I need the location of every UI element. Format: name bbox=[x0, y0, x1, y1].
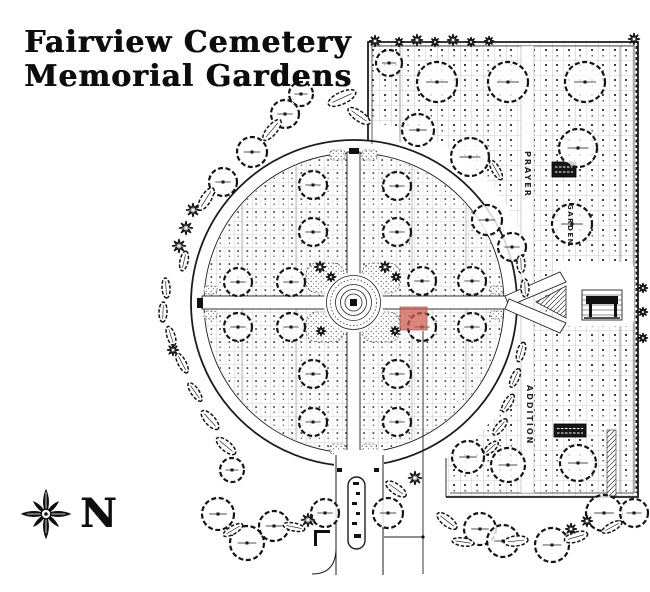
label-prayer: PRAYER bbox=[523, 151, 532, 198]
shrub-star-icon bbox=[565, 523, 577, 535]
shrub-star-icon bbox=[430, 37, 440, 47]
shrub-star-icon bbox=[408, 471, 422, 485]
shrub-star-icon bbox=[369, 35, 381, 47]
compass-north-label: N bbox=[80, 486, 117, 542]
compass: N bbox=[18, 486, 117, 542]
shrub-star-icon bbox=[628, 33, 640, 45]
highlighted-plot[interactable] bbox=[400, 307, 427, 330]
center-fountain bbox=[324, 273, 384, 333]
shrub-star-icon bbox=[484, 36, 494, 46]
shrub-star-icon bbox=[186, 203, 200, 217]
shrub-star-icon bbox=[172, 239, 186, 253]
compass-rose-icon bbox=[18, 486, 74, 542]
shrub-star-icon bbox=[447, 34, 459, 46]
map-title-line1: Fairview Cemetery bbox=[24, 26, 352, 60]
shrub-star-icon bbox=[326, 272, 336, 282]
cemetery-map-page: PRAYER GARDEN ADDITION Fairview Cemetery… bbox=[0, 0, 650, 592]
shrub-star-icon bbox=[638, 307, 648, 317]
pavilion-icon bbox=[582, 290, 622, 320]
shrub-star-icon bbox=[638, 283, 648, 293]
shrub-star-icon bbox=[379, 261, 391, 273]
hatched-strip bbox=[607, 430, 616, 496]
shrub-star-icon bbox=[394, 37, 404, 47]
shrub-star-icon bbox=[167, 344, 179, 356]
label-addition: ADDITION bbox=[525, 385, 534, 445]
addition-section-sign bbox=[554, 424, 586, 437]
shrub-star-icon bbox=[316, 326, 326, 336]
shrub-star-icon bbox=[390, 326, 400, 336]
shrub-star-icon bbox=[581, 515, 593, 527]
map-title-line2: Memorial Gardens bbox=[24, 60, 352, 94]
map-title: Fairview Cemetery Memorial Gardens bbox=[24, 26, 352, 94]
shrub-star-icon bbox=[638, 333, 648, 343]
label-garden: GARDEN bbox=[566, 204, 574, 246]
shrub-star-icon bbox=[391, 272, 401, 282]
shrub-star-icon bbox=[411, 34, 423, 46]
shrub-star-icon bbox=[314, 261, 326, 273]
shrub-star-icon bbox=[466, 37, 476, 47]
shrub-star-icon bbox=[301, 513, 315, 527]
shrub-star-icon bbox=[179, 221, 193, 235]
